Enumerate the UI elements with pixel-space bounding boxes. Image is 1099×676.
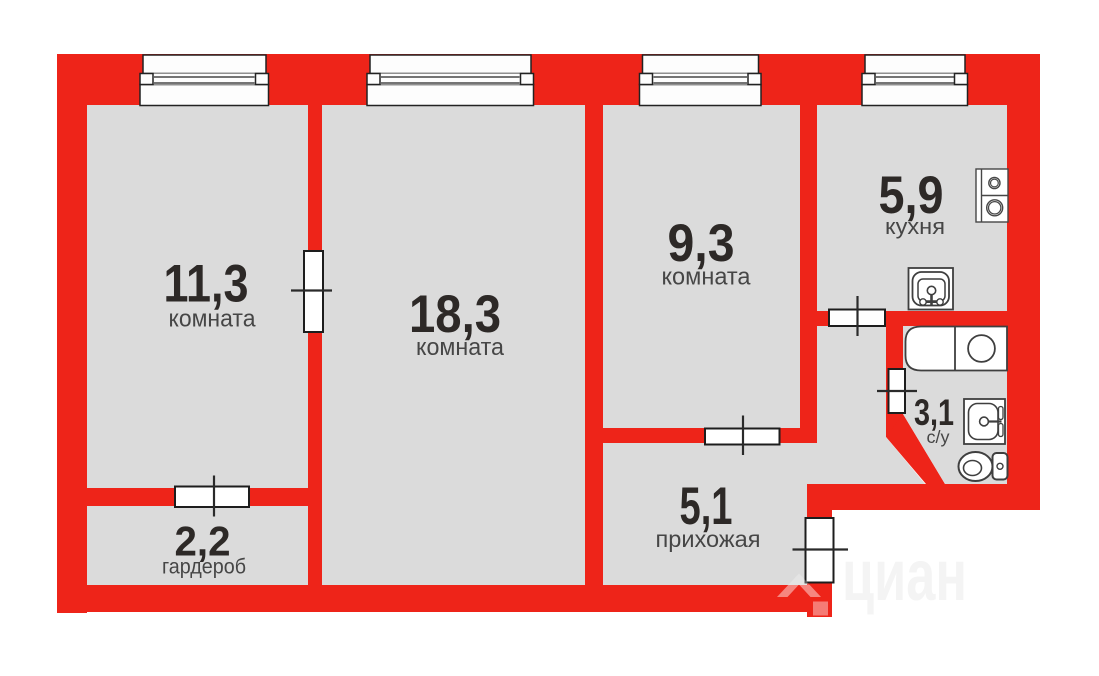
svg-text:с/у: с/у [927, 427, 950, 447]
svg-text:кухня: кухня [885, 214, 945, 239]
svg-text:комната: комната [662, 264, 752, 291]
svg-text:комната: комната [416, 334, 505, 361]
svg-text:циан: циан [842, 536, 967, 616]
svg-text:комната: комната [169, 306, 257, 333]
svg-text:прихожая: прихожая [656, 526, 761, 552]
svg-text:гардероб: гардероб [162, 555, 246, 579]
